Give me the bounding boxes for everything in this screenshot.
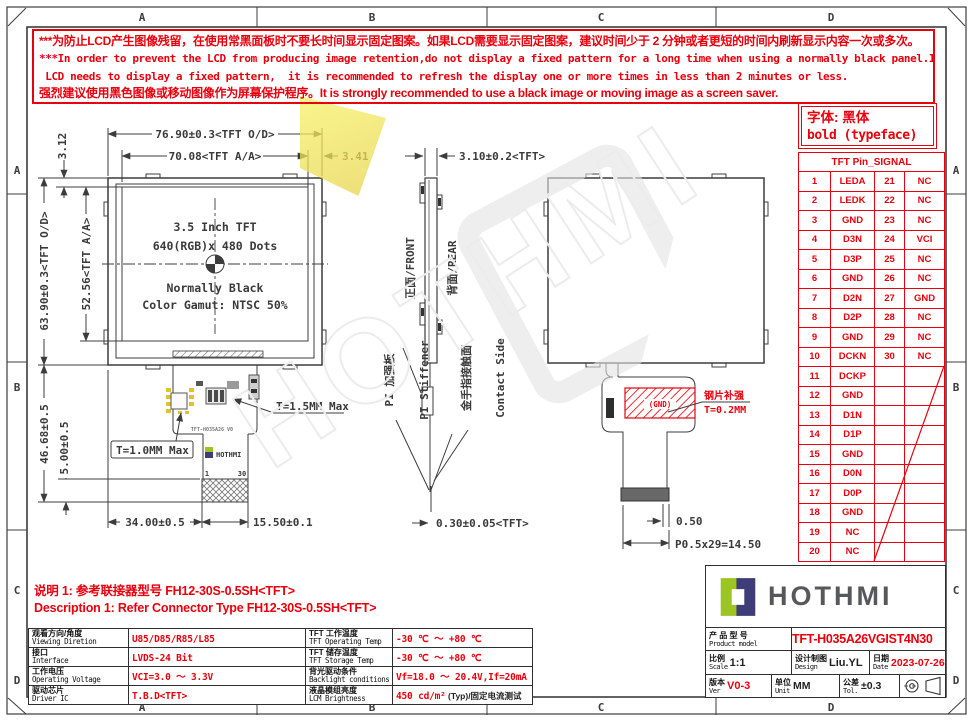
rear-dimensions bbox=[623, 504, 669, 549]
pin-row: 14D1P bbox=[799, 425, 945, 445]
gnd-label: (GND) bbox=[649, 400, 672, 409]
note-cn: 说明 1: 参考联接器型号 FH12-30S-0.5SH<TFT> bbox=[34, 583, 376, 600]
typeface-note-box: 字体: 黑体 bold (typeface) bbox=[798, 103, 937, 149]
pin-row: 10DCKN30NC bbox=[799, 347, 945, 367]
zone-left-d: D bbox=[14, 674, 21, 687]
fpc-logo-text: HOTHMI bbox=[216, 451, 241, 459]
label-t10: T=1.0MM Max bbox=[116, 444, 189, 457]
panel-mode-text: Normally Black bbox=[167, 281, 264, 295]
zone-right-c: C bbox=[953, 584, 960, 597]
dim-312: 3.12 bbox=[56, 133, 69, 160]
warning-line-en2: LCD needs to display a fixed pattern, it… bbox=[39, 68, 928, 85]
pin-row: 13D1N bbox=[799, 406, 945, 426]
pin-row: 11DCKP bbox=[799, 367, 945, 387]
scale-design-date-row: 比例Scale 1:1 设计制图Design Liu.YL 日期Date 202… bbox=[706, 650, 945, 674]
panel-gamut-text: Color Gamut: NTSC 50% bbox=[142, 298, 287, 312]
label-steel-stiffener: 钢片补强 bbox=[704, 389, 744, 402]
unit-value: MM bbox=[793, 680, 811, 692]
label-rear-side: 背面/REAR bbox=[445, 240, 459, 295]
version-value: V0-3 bbox=[727, 680, 750, 692]
label-pi-en: PI Stiffener bbox=[418, 340, 431, 420]
pin-row: 2LEDK22NC bbox=[799, 191, 945, 211]
pin-row: 16D0N bbox=[799, 464, 945, 484]
panel-resolution-text: 640(RGB)x 480 Dots bbox=[153, 239, 278, 253]
hothmi-logo-mark bbox=[716, 575, 760, 619]
pin-row: 17D0P bbox=[799, 484, 945, 504]
projection-symbol-icon bbox=[903, 676, 943, 696]
product-model-row: 产 品 型 号Product model TFT-H035A26VGIST4N3… bbox=[706, 627, 945, 650]
zone-left-a: A bbox=[14, 164, 21, 177]
rear-view: (GND) 钢片补强 T=0.2MM 0.50 P0.5x29=14.50 bbox=[544, 174, 768, 551]
spec-row: 驱动芯片Driver IC T.B.D<TFT> 液晶模组亮度LCM Brigh… bbox=[29, 686, 533, 705]
dim-341: 3.41 bbox=[342, 150, 369, 163]
dim-pitch: P0.5x29=14.50 bbox=[675, 538, 761, 551]
cof-ledge bbox=[173, 351, 263, 357]
hothmi-logo-text: HOTHMI bbox=[768, 581, 892, 612]
pin-row: 19NC bbox=[799, 523, 945, 543]
spec-row: 观看方向/角度Viewing Diretion U85/D85/R85/L85 … bbox=[29, 629, 533, 648]
rear-fpc bbox=[602, 363, 695, 488]
center-mark bbox=[206, 255, 224, 273]
date-value: 2023-07-26 bbox=[891, 657, 945, 669]
pin-signal-table: TFT Pin_SIGNAL 1LEDA21NC 2LEDK22NC 3GND2… bbox=[798, 152, 945, 563]
zone-right-a: A bbox=[953, 164, 960, 177]
label-contact-en: Contact Side bbox=[494, 338, 507, 418]
dim-od-width: 76.90±0.3<TFT O/D> bbox=[155, 128, 275, 141]
dim-500: 5.00±0.5 bbox=[58, 422, 71, 475]
zone-bottom-c: C bbox=[598, 701, 605, 714]
label-front-side: 正面/FRONT bbox=[404, 237, 417, 299]
design-value: Liu.YL bbox=[829, 657, 863, 669]
pin-row: 20NC bbox=[799, 542, 945, 562]
note-en: Description 1: Refer Connector Type FH12… bbox=[34, 600, 376, 617]
connector-notes: 说明 1: 参考联接器型号 FH12-30S-0.5SH<TFT> Descri… bbox=[34, 583, 376, 616]
image-retention-warning: ***为防止LCD产生图像残留，在使用常黑面板时不要长时间显示固定图案。如果LC… bbox=[32, 29, 935, 104]
zone-right-d: D bbox=[953, 674, 960, 687]
spec-table: 观看方向/角度Viewing Diretion U85/D85/R85/L85 … bbox=[28, 628, 533, 705]
dim-od-height: 63.90±0.3<TFT O/D> bbox=[38, 211, 51, 331]
pin1-label: 1 bbox=[205, 470, 209, 478]
dim-aa-height: 52.56<TFT A/A> bbox=[80, 217, 93, 310]
fpc-logo: HOTHMI bbox=[205, 447, 241, 459]
pin30-label: 30 bbox=[238, 470, 246, 478]
dim-030: 0.30±0.05<TFT> bbox=[436, 517, 529, 530]
product-model-value: TFT-H035A26VGIST4N30 bbox=[792, 632, 933, 646]
label-steel-thickness: T=0.2MM bbox=[704, 405, 746, 416]
dim-1550: 15.50±0.1 bbox=[253, 516, 313, 529]
pin-row: 4D3N24VCI bbox=[799, 230, 945, 250]
panel-size-text: 3.5 Inch TFT bbox=[173, 220, 256, 234]
dim-aa-width: 70.08<TFT A/A> bbox=[169, 150, 262, 163]
pin-table-title: TFT Pin_SIGNAL bbox=[799, 153, 945, 172]
typeface-note-en: bold (typeface) bbox=[807, 127, 928, 145]
rear-connector bbox=[621, 488, 669, 501]
zone-right-b: B bbox=[953, 381, 960, 394]
dim-3400: 34.00±0.5 bbox=[125, 516, 185, 529]
version-unit-tol-row: 版本Ver V0-3 单位Unit MM 公差Tol. ±0.3 bbox=[706, 674, 945, 697]
tolerance-value: ±0.3 bbox=[861, 680, 881, 692]
pin-row: 12GND bbox=[799, 386, 945, 406]
pin-row: 7D2N27GND bbox=[799, 289, 945, 309]
title-block: HOTHMI 产 品 型 号Product model TFT-H035A26V… bbox=[705, 565, 946, 698]
fpc-part-number: TFT-H035A26 V0 bbox=[191, 427, 233, 433]
warning-line-cn: ***为防止LCD产生图像残留，在使用常黑面板时不要长时间显示固定图案。如果LC… bbox=[39, 33, 928, 50]
side-view: 正面/FRONT 背面/REAR PI 加强板 PI Stiffener 金手指… bbox=[382, 148, 545, 530]
pin-row: 5D3P25NC bbox=[799, 250, 945, 270]
pin-row: 8D2P28NC bbox=[799, 308, 945, 328]
dim-4668: 46.68±0.5 bbox=[38, 404, 51, 464]
zone-bottom-d: D bbox=[828, 701, 835, 714]
label-pi-cn: PI 加强板 bbox=[382, 353, 396, 407]
spec-row: 接口Interface LVDS-24 Bit TFT 储存温度TFT Stor… bbox=[29, 648, 533, 667]
spec-row: 工作电压Operating Voltage VCI=3.0 ～ 3.3V 背光驱… bbox=[29, 667, 533, 686]
zone-top-c: C bbox=[598, 11, 605, 24]
label-t15: T=1.5MM Max bbox=[276, 400, 349, 413]
warning-line-mixed: 强烈建议使用黑色图像或移动图像作为屏幕保护程序。It is strongly r… bbox=[39, 85, 928, 102]
pin-row: 3GND23NC bbox=[799, 211, 945, 231]
company-logo: HOTHMI bbox=[706, 566, 945, 627]
zone-top-b: B bbox=[369, 11, 376, 24]
pin-row: 15GND bbox=[799, 445, 945, 465]
zone-top-d: D bbox=[828, 11, 835, 24]
dim-050: 0.50 bbox=[676, 515, 703, 528]
zone-left-b: B bbox=[14, 381, 21, 394]
fpc-components bbox=[166, 375, 259, 414]
pin-row: 6GND26NC bbox=[799, 269, 945, 289]
warning-line-en1: ***In order to prevent the LCD from prod… bbox=[39, 50, 928, 67]
pin-row: 18GND bbox=[799, 503, 945, 523]
pin-row: 9GND29NC bbox=[799, 328, 945, 348]
zone-top-a: A bbox=[139, 11, 146, 24]
zone-left-c: C bbox=[14, 584, 21, 597]
fpc-tail bbox=[173, 365, 257, 479]
scale-value: 1:1 bbox=[730, 657, 746, 669]
rear-component bbox=[606, 398, 614, 418]
pin-row: 1LEDA21NC bbox=[799, 172, 945, 192]
typeface-note-cn: 字体: 黑体 bbox=[807, 108, 928, 127]
drawing-sheet: A B C D A B C D A B C D A B C D bbox=[0, 0, 974, 721]
label-contact-cn: 金手指接触面 bbox=[459, 345, 473, 412]
fpc-connector-fingers bbox=[202, 479, 248, 502]
front-view: 3.5 Inch TFT 640(RGB)x 480 Dots Normally… bbox=[37, 127, 369, 529]
dim-310: 3.10±0.2<TFT> bbox=[459, 150, 545, 163]
